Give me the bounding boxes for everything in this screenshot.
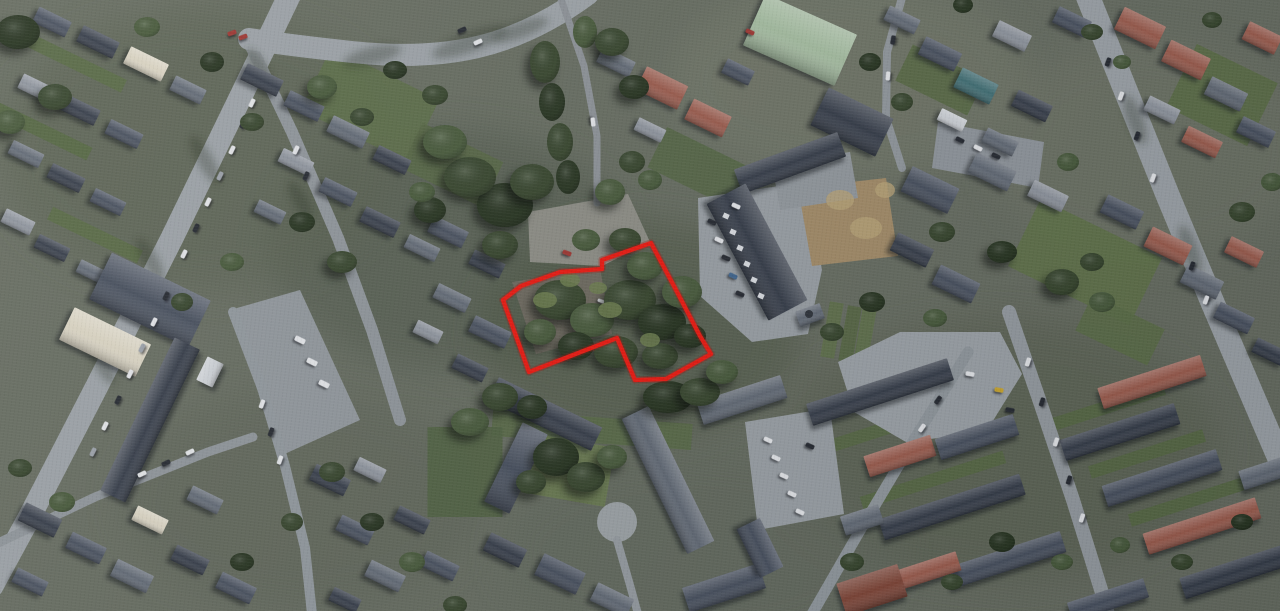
scrub (533, 292, 557, 308)
tree-shading (1057, 153, 1079, 171)
tree-shading (399, 552, 425, 572)
tree-shading (1171, 554, 1193, 570)
tree-shading (451, 408, 489, 436)
tree-shading (510, 164, 554, 200)
tree-shading (200, 52, 224, 72)
tree-shading (642, 343, 678, 369)
tree-shading (572, 229, 600, 251)
tree-shading (595, 179, 625, 205)
dirt-blotch (850, 217, 882, 239)
tree-shading (1080, 253, 1104, 271)
tree-shading (422, 85, 448, 105)
tree-shading (1229, 202, 1255, 222)
tree-shading (319, 462, 345, 482)
tree-shading (1081, 24, 1103, 40)
tree-shading (1231, 514, 1253, 530)
tree-shading (597, 445, 627, 469)
tree-shading (8, 459, 32, 477)
tree-shading (517, 395, 547, 419)
tree-shading (891, 93, 913, 111)
satellite-imagery (0, 0, 1280, 611)
garden-dome (805, 310, 813, 318)
tree-shading (423, 125, 467, 159)
tree-shading (482, 383, 518, 411)
tree-shading (987, 241, 1017, 263)
tree-shading (1113, 55, 1131, 69)
tree-shading (350, 108, 374, 126)
tree-shading (171, 293, 193, 311)
scrub (640, 333, 660, 347)
tree-shading (859, 292, 885, 312)
dirt-blotch (826, 190, 854, 210)
parking-lot (745, 408, 844, 530)
aerial-map[interactable] (0, 0, 1280, 611)
scrub (598, 302, 622, 318)
tree-shading (989, 532, 1015, 552)
scrub (589, 282, 607, 294)
tree-shading (409, 182, 435, 202)
tree-shading (360, 513, 384, 531)
tree-shading (307, 75, 337, 99)
tree-shading (1089, 292, 1115, 312)
tree-shading (1051, 554, 1073, 570)
tree-shading (383, 61, 407, 79)
tree-shading (444, 157, 496, 197)
tree-shading (556, 160, 580, 194)
tree-shading (327, 251, 357, 273)
tree-shading (547, 123, 573, 161)
tree-shading (230, 553, 254, 571)
tree-shading (567, 462, 605, 492)
tree-shading (619, 151, 645, 173)
tree-shading (482, 231, 518, 259)
tree-shading (240, 113, 264, 131)
tree-shading (516, 470, 546, 494)
tree-shading (820, 323, 844, 341)
tree-shading (38, 84, 72, 110)
tree-shading (1110, 537, 1130, 553)
tree-shading (1045, 269, 1079, 295)
tree-shading (281, 513, 303, 531)
car (590, 117, 595, 126)
tree-shading (289, 212, 315, 232)
tree-shading (220, 253, 244, 271)
tree-shading (941, 574, 963, 590)
tree-shading (524, 319, 556, 345)
tree-shading (530, 41, 560, 83)
tree-shading (840, 553, 864, 571)
tree-shading (638, 170, 662, 190)
tree-shading (1202, 12, 1222, 28)
car (885, 71, 890, 80)
tree-shading (923, 309, 947, 327)
tree-shading (929, 222, 955, 242)
tree-shading (859, 53, 881, 71)
tree-shading (573, 16, 597, 48)
tree-shading (49, 492, 75, 512)
cul-de-sac (597, 502, 637, 542)
tree-shading (595, 28, 629, 56)
tree-shading (134, 17, 160, 37)
tree-shading (706, 360, 738, 384)
dirt-blotch (875, 182, 895, 198)
tree-shading (539, 83, 565, 121)
tree-shading (619, 75, 649, 99)
